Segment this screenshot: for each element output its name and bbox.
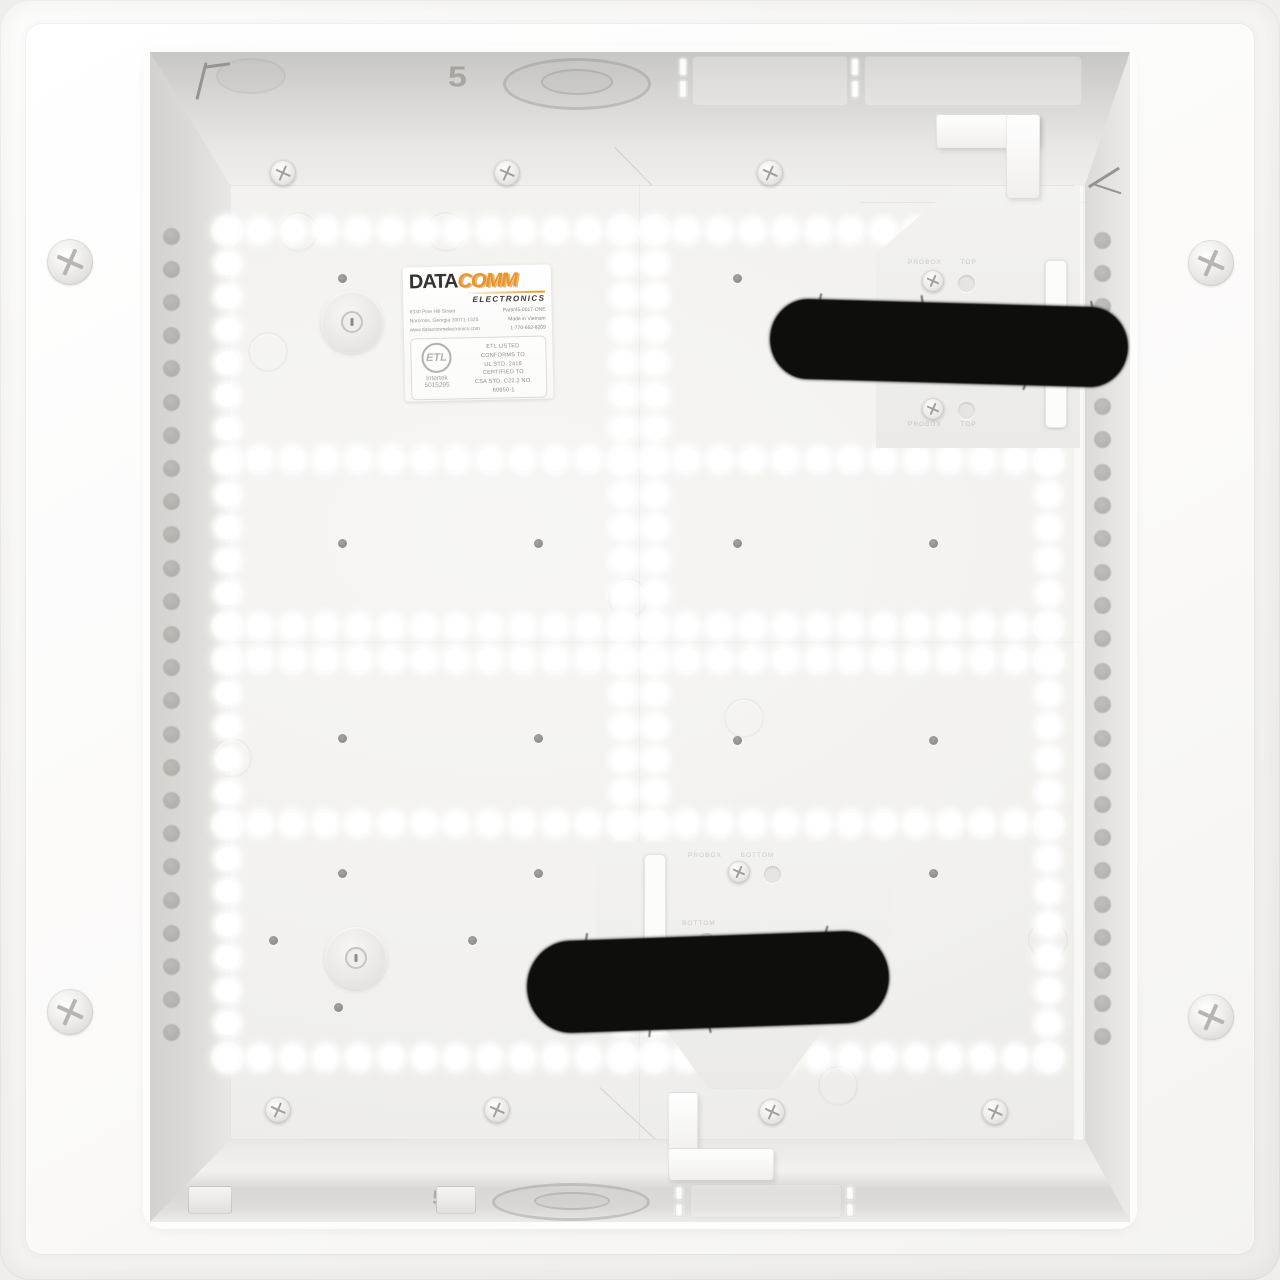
panel-hole: [413, 1046, 436, 1069]
panel-hole: [905, 1046, 928, 1069]
panel-hole: [971, 812, 994, 835]
panel-hole: [774, 648, 797, 671]
panel-hole: [544, 615, 567, 638]
panel-hole: [644, 318, 667, 341]
pilot-hole: [534, 539, 543, 548]
panel-hole: [314, 219, 337, 242]
wall-size-mark: 5: [448, 61, 467, 94]
panel-hole: [248, 648, 271, 671]
panel-hole: [478, 1046, 501, 1069]
etl-logo-icon: ETL: [421, 343, 452, 374]
pilot-hole: [929, 736, 938, 745]
cable-knockout-oval-inner: [541, 69, 613, 95]
panel-hole: [971, 1046, 994, 1069]
panel-hole: [216, 814, 239, 837]
brand-logo-data: DATA: [409, 270, 458, 293]
panel-hole: [644, 715, 667, 738]
etl-number: 5015295: [416, 382, 458, 390]
panel-hole: [708, 615, 731, 638]
embossed-ring: [724, 698, 764, 738]
panel-hole: [612, 549, 635, 572]
panel-hole: [216, 715, 239, 738]
panel-hole: [314, 812, 337, 835]
panel-hole: [1037, 682, 1060, 705]
panel-hole: [971, 615, 994, 638]
pilot-hole: [929, 539, 938, 548]
panel-standoff-boss: [325, 927, 387, 989]
panel-hole: [511, 448, 534, 471]
panel-hole: [807, 812, 830, 835]
panel-seam: [230, 642, 1085, 643]
panel-hole: [938, 1046, 961, 1069]
panel-hole: [1037, 847, 1060, 870]
panel-hole: [577, 219, 600, 242]
panel-hole: [938, 648, 961, 671]
panel-hole: [248, 615, 271, 638]
panel-hole: [544, 448, 567, 471]
panel-hole: [216, 219, 239, 242]
label-address-column: 6330 Pine Hill Street Norcross, Georgia …: [409, 307, 480, 335]
panel-hole: [478, 615, 501, 638]
panel-hole: [839, 219, 862, 242]
panel-hole: [413, 648, 436, 671]
panel-hole: [347, 1046, 370, 1069]
panel-hole: [281, 615, 304, 638]
wall-vent-hole: [1094, 597, 1111, 614]
panel-hole: [1004, 812, 1027, 835]
panel-hole: [511, 1046, 534, 1069]
panel-hole: [216, 351, 239, 374]
panel-hole: [938, 615, 961, 638]
panel-hole: [708, 812, 731, 835]
panel-hole: [644, 582, 667, 605]
phillips-screw: [982, 1099, 1008, 1125]
etl-mark: ETL Intertek 5015295: [415, 343, 458, 397]
panel-hole: [445, 219, 468, 242]
panel-hole: [1037, 483, 1060, 506]
panel-hole: [644, 1046, 667, 1069]
panel-hole: [612, 384, 635, 407]
panel-hole: [216, 483, 239, 506]
panel-hole: [612, 351, 635, 374]
embossed-hole: [958, 275, 975, 292]
panel-hole: [248, 448, 271, 471]
panel-hole: [478, 648, 501, 671]
panel-hole: [281, 448, 304, 471]
panel-hole: [478, 219, 501, 242]
panel-hole: [1037, 549, 1060, 572]
panel-hole: [612, 582, 635, 605]
panel-hole: [644, 483, 667, 506]
panel-hole: [347, 648, 370, 671]
wall-slot: [675, 1186, 683, 1200]
panel-hole: [872, 812, 895, 835]
wall-vent-hole: [163, 360, 180, 377]
panel-hole: [347, 812, 370, 835]
wall-vent-hole: [163, 825, 180, 842]
panel-hole: [839, 615, 862, 638]
panel-hole: [445, 1046, 468, 1069]
panel-hole: [612, 649, 635, 672]
panel-hole: [511, 615, 534, 638]
wall-vent-hole: [163, 626, 180, 643]
brand-logo-comm: COMM: [457, 269, 517, 292]
wall-vent-hole: [1094, 630, 1111, 647]
phillips-screw: [270, 160, 296, 186]
panel-hole: [971, 648, 994, 671]
panel-hole: [774, 615, 797, 638]
wall-vent-hole: [1094, 464, 1111, 481]
panel-hole: [248, 1046, 271, 1069]
wall-vent-hole: [163, 460, 180, 477]
wall-vent-hole: [1094, 1028, 1111, 1045]
bottom-cable-hook: [668, 1092, 698, 1156]
panel-hole: [216, 979, 239, 1002]
wall-vent-hole: [1094, 530, 1111, 547]
phillips-screw: [484, 1097, 510, 1123]
panel-hole: [644, 417, 667, 440]
wall-latch-notch: [436, 1186, 476, 1214]
panel-hole: [281, 812, 304, 835]
panel-hole: [612, 748, 635, 771]
phillips-screw: [759, 1099, 785, 1125]
wall-vent-hole: [1094, 763, 1111, 780]
panel-hole: [544, 812, 567, 835]
phillips-screw: [1188, 240, 1234, 286]
wall-slot: [851, 80, 859, 98]
panel-hole: [1037, 781, 1060, 804]
panel-hole: [1004, 1046, 1027, 1069]
panel-hole: [380, 812, 403, 835]
panel-hole: [216, 913, 239, 936]
wall-vent-hole: [163, 726, 180, 743]
panel-hole: [281, 219, 304, 242]
panel-hole: [478, 812, 501, 835]
panel-hole: [511, 812, 534, 835]
panel-hole: [675, 615, 698, 638]
panel-hole: [413, 812, 436, 835]
panel-hole: [216, 781, 239, 804]
panel-hole: [1037, 450, 1060, 473]
panel-hole: [644, 384, 667, 407]
panel-hole: [612, 219, 635, 242]
panel-hole: [644, 615, 667, 638]
top-cable-hook: [1006, 114, 1040, 198]
panel-hole: [741, 615, 764, 638]
panel-hole: [612, 1046, 635, 1069]
panel-hole: [807, 448, 830, 471]
brand-logo-sub: ELECTRONICS: [409, 294, 545, 306]
product-label: DATACOMM ELECTRONICS 6330 Pine Hill Stre…: [403, 264, 554, 401]
panel-hole: [577, 812, 600, 835]
panel-hole: [413, 448, 436, 471]
plate-embossed-text: BOTTOM: [682, 920, 716, 927]
embossed-hole: [764, 866, 781, 883]
panel-hole: [511, 648, 534, 671]
wall-slot: [675, 1203, 683, 1217]
pilot-hole: [468, 936, 477, 945]
panel-hole: [216, 748, 239, 771]
wall-vent-hole: [163, 261, 180, 278]
panel-standoff-boss: [321, 291, 383, 353]
panel-hole: [1037, 913, 1060, 936]
plate-embossed-text: PROBOX TOP: [908, 421, 977, 428]
wall-vent-hole: [1094, 265, 1111, 282]
wall-vent-hole: [1094, 232, 1111, 249]
panel-hole: [872, 219, 895, 242]
wall-vent-hole: [163, 593, 180, 610]
panel-hole: [216, 847, 239, 870]
panel-hole: [675, 812, 698, 835]
panel-hole: [577, 1046, 600, 1069]
panel-hole: [644, 219, 667, 242]
panel-hole: [675, 219, 698, 242]
panel-hole: [839, 1046, 862, 1069]
panel-hole: [971, 448, 994, 471]
panel-hole: [1037, 814, 1060, 837]
panel-hole: [544, 219, 567, 242]
panel-hole: [380, 1046, 403, 1069]
pilot-hole: [338, 274, 347, 283]
panel-hole: [380, 615, 403, 638]
wall-vent-hole: [163, 394, 180, 411]
cable-knockout-oval-inner: [534, 1192, 610, 1210]
wall-vent-hole: [1094, 663, 1111, 680]
certification-line: CSA STD. C22.2 NO.: [464, 377, 543, 387]
label-address-block: 6330 Pine Hill Street Norcross, Georgia …: [409, 306, 546, 335]
pilot-hole: [338, 539, 347, 548]
wall-slot: [679, 80, 687, 98]
panel-hole: [347, 615, 370, 638]
panel-hole: [1004, 615, 1027, 638]
pilot-hole: [733, 736, 742, 745]
phillips-screw: [757, 160, 783, 186]
panel-hole: [216, 516, 239, 539]
panel-hole: [413, 219, 436, 242]
panel-hole: [741, 219, 764, 242]
wall-slot: [851, 58, 859, 76]
wall-vent-hole: [163, 427, 180, 444]
embossed-ring: [818, 1066, 858, 1106]
panel-hole: [216, 1046, 239, 1069]
wall-slot: [679, 58, 687, 76]
panel-hole: [612, 715, 635, 738]
panel-hole: [577, 648, 600, 671]
panel-hole: [774, 448, 797, 471]
panel-hole: [216, 252, 239, 275]
panel-hole: [938, 812, 961, 835]
panel-hole: [612, 285, 635, 308]
panel-hole: [774, 812, 797, 835]
panel-hole: [1037, 715, 1060, 738]
panel-hole: [612, 483, 635, 506]
panel-hole: [807, 615, 830, 638]
velcro-strap-bottom: [526, 930, 891, 1035]
panel-hole: [872, 1046, 895, 1069]
panel-hole: [281, 1046, 304, 1069]
panel-hole: [612, 516, 635, 539]
panel-hole: [839, 448, 862, 471]
panel-hole: [938, 448, 961, 471]
wall-vent-hole: [163, 759, 180, 776]
panel-hole: [577, 448, 600, 471]
panel-hole: [1037, 946, 1060, 969]
panel-hole: [905, 648, 928, 671]
wall-vent-hole: [1094, 497, 1111, 514]
bottom-cable-hook: [668, 1148, 774, 1180]
wall-vent-hole: [163, 493, 180, 510]
panel-hole: [216, 384, 239, 407]
panel-hole: [612, 615, 635, 638]
panel-hole: [1037, 582, 1060, 605]
panel-hole: [216, 450, 239, 473]
panel-hole: [1037, 880, 1060, 903]
panel-hole: [445, 615, 468, 638]
panel-hole: [644, 649, 667, 672]
label-phone: 1-770-662-8209: [503, 323, 546, 333]
panel-hole: [281, 648, 304, 671]
panel-hole: [216, 549, 239, 572]
wall-vent-hole: [163, 294, 180, 311]
panel-hole: [644, 781, 667, 804]
panel-hole: [741, 812, 764, 835]
panel-hole: [314, 1046, 337, 1069]
plate-embossed-text: PROBOX TOP: [908, 259, 977, 266]
certification-text: ETL LISTED CONFORMS TO UL STD. 2416 CERT…: [463, 341, 543, 396]
phillips-screw: [494, 160, 520, 186]
panel-hole: [216, 417, 239, 440]
label-made-in: Made in Vietnam: [503, 314, 546, 324]
wall-vent-hole: [1094, 929, 1111, 946]
panel-hole: [905, 615, 928, 638]
pilot-hole: [338, 869, 347, 878]
panel-hole: [248, 219, 271, 242]
wall-vent-hole: [163, 327, 180, 344]
phillips-screw: [47, 239, 93, 285]
panel-hole: [216, 682, 239, 705]
panel-hole: [314, 648, 337, 671]
panel-hole: [216, 1012, 239, 1035]
panel-hole: [216, 946, 239, 969]
wall-vent-hole: [163, 858, 180, 875]
panel-hole: [675, 648, 698, 671]
panel-hole: [1037, 516, 1060, 539]
pilot-hole: [733, 274, 742, 283]
pilot-hole: [534, 869, 543, 878]
panel-hole: [708, 648, 731, 671]
panel-hole: [216, 615, 239, 638]
wall-knockout-band: [690, 1184, 842, 1218]
panel-hole: [644, 450, 667, 473]
panel-hole: [644, 682, 667, 705]
panel-hole: [380, 219, 403, 242]
panel-hole: [380, 448, 403, 471]
panel-hole: [644, 351, 667, 374]
embossed-hole: [958, 402, 975, 419]
label-info-column: Part#45-0017-ONE Made in Vietnam 1-770-6…: [503, 306, 546, 333]
panel-hole: [314, 615, 337, 638]
panel-hole: [445, 648, 468, 671]
wall-vent-hole: [1094, 696, 1111, 713]
wall-slot: [846, 1186, 854, 1200]
panel-hole: [612, 252, 635, 275]
panel-hole: [708, 448, 731, 471]
wall-vent-hole: [163, 560, 180, 577]
wall-vent-hole: [1094, 829, 1111, 846]
panel-hole: [445, 812, 468, 835]
panel-hole: [445, 448, 468, 471]
wall-vent-hole: [1094, 896, 1111, 913]
panel-hole: [612, 417, 635, 440]
panel-hole: [612, 781, 635, 804]
certification-line: 60950-1: [464, 385, 543, 395]
panel-hole: [774, 219, 797, 242]
panel-hole: [1004, 448, 1027, 471]
wall-vent-hole: [1094, 796, 1111, 813]
panel-hole: [612, 682, 635, 705]
panel-hole: [612, 318, 635, 341]
panel-hole: [478, 448, 501, 471]
panel-hole: [577, 615, 600, 638]
certification-box: ETL Intertek 5015295 ETL LISTED CONFORMS…: [410, 336, 547, 401]
panel-hole: [872, 615, 895, 638]
pilot-hole: [269, 936, 278, 945]
panel-hole: [1037, 1046, 1060, 1069]
panel-hole: [216, 318, 239, 341]
panel-hole: [807, 1046, 830, 1069]
wall-vent-hole: [163, 925, 180, 942]
wall-vent-hole: [1094, 962, 1111, 979]
brand-logo: DATACOMM: [409, 270, 545, 293]
etl-logo-text: ETL: [426, 352, 447, 364]
panel-hole: [905, 812, 928, 835]
wall-vent-hole: [1094, 730, 1111, 747]
wall-vent-hole: [163, 228, 180, 245]
wall-vent-hole: [1094, 995, 1111, 1012]
wall-vent-hole: [163, 659, 180, 676]
panel-hole: [1037, 748, 1060, 771]
phillips-screw: [728, 861, 750, 883]
panel-hole: [347, 219, 370, 242]
panel-hole: [612, 814, 635, 837]
pilot-hole: [929, 869, 938, 878]
wall-vent-hole: [1094, 398, 1111, 415]
panel-hole: [708, 219, 731, 242]
panel-hole: [413, 615, 436, 638]
panel-hole: [644, 814, 667, 837]
panel-hole: [216, 649, 239, 672]
panel-hole: [1037, 1012, 1060, 1035]
label-address-line: www.datacommelectronics.com: [410, 324, 480, 334]
panel-hole: [380, 648, 403, 671]
pilot-hole: [534, 734, 543, 743]
phillips-screw: [922, 270, 944, 292]
phillips-screw: [47, 989, 93, 1035]
wall-vent-hole: [1094, 431, 1111, 448]
embossed-ring: [248, 332, 288, 372]
panel-hole: [248, 812, 271, 835]
panel-hole: [905, 448, 928, 471]
panel-hole: [314, 448, 337, 471]
panel-hole: [644, 748, 667, 771]
panel-hole: [1037, 649, 1060, 672]
panel-hole: [612, 450, 635, 473]
panel-hole: [839, 648, 862, 671]
wall-vent-hole: [1094, 862, 1111, 879]
panel-hole: [644, 252, 667, 275]
panel-hole: [807, 219, 830, 242]
wall-latch-notch: [188, 1186, 232, 1214]
